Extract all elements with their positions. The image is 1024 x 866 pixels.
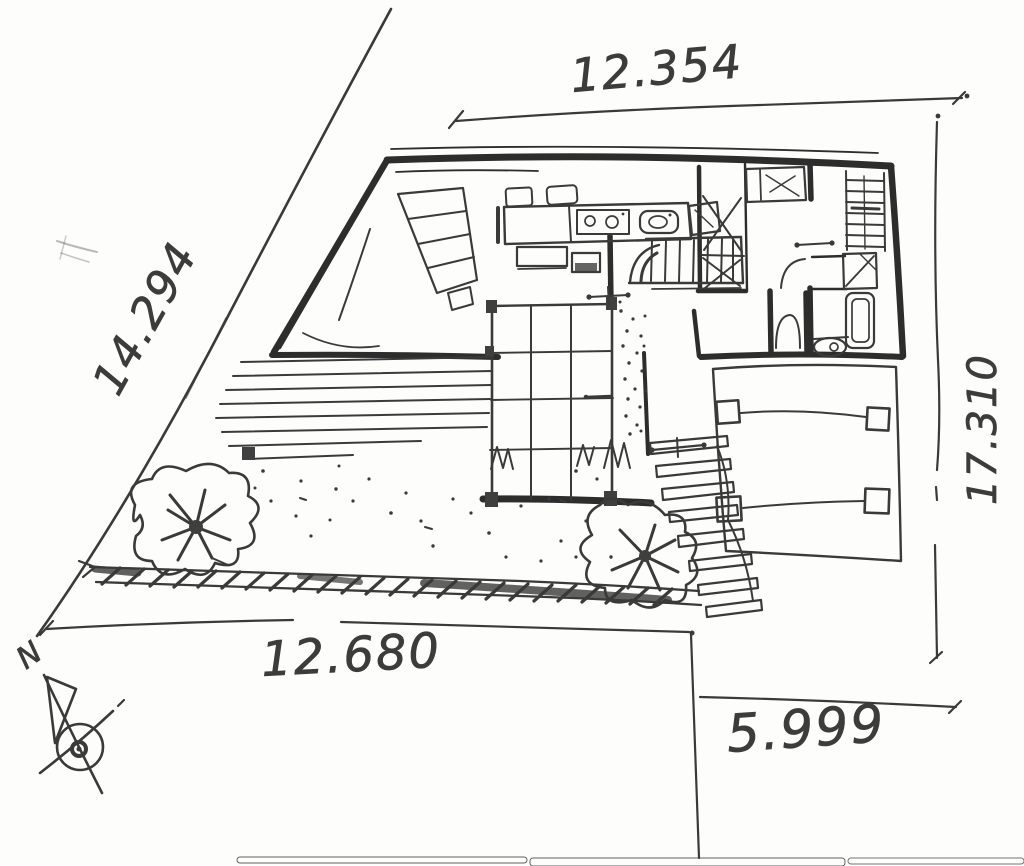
plant-tufts <box>491 440 630 469</box>
dimension-label-right: 17.310 <box>960 353 1006 505</box>
post <box>716 400 739 423</box>
site-plan-sketch: 12.354 17.310 14.294 12.680 5.999 N <box>0 0 1024 866</box>
dimension-top: 12.354 <box>449 34 969 128</box>
door-symbol <box>781 240 835 288</box>
post <box>866 407 889 430</box>
tree <box>131 464 258 575</box>
dimension-label-bottom: 12.680 <box>260 623 443 688</box>
bathtub <box>846 293 874 348</box>
dimension-bottom-right: 5.999 <box>700 694 961 765</box>
ramp-sketch <box>303 188 477 347</box>
glazed-grid-wall <box>485 287 631 507</box>
shelf-closet <box>846 171 885 251</box>
post <box>865 489 890 514</box>
dimension-label-top: 12.354 <box>568 34 745 103</box>
scanned-sketch-page: 12.354 17.310 14.294 12.680 5.999 N <box>0 0 1024 866</box>
chair <box>546 185 577 205</box>
hatched-retaining-wall <box>79 561 701 605</box>
shower <box>843 253 877 289</box>
north-label: N <box>10 634 50 677</box>
dimension-right: 17.310 <box>930 114 1006 663</box>
tree-trunk-scribble <box>162 490 230 565</box>
bathroom-fixtures <box>776 171 885 356</box>
door-leaf <box>776 315 800 348</box>
chair <box>506 187 533 206</box>
terrace-decking <box>216 357 492 460</box>
site-boundary <box>37 9 391 636</box>
pencil-smudge <box>57 236 97 262</box>
cabinet <box>517 247 567 266</box>
house-walls <box>272 147 903 503</box>
staircase <box>629 237 743 289</box>
bed <box>746 167 806 202</box>
kitchen-sink <box>640 211 678 233</box>
tree-trunk-scribble <box>612 525 678 590</box>
scan-artifact <box>237 857 1024 866</box>
dimension-bottom: 12.680 <box>40 620 699 858</box>
carport <box>713 365 901 561</box>
stove-top <box>577 210 629 234</box>
north-compass-icon: N <box>10 634 124 793</box>
dimension-left: 14.294 <box>83 233 208 403</box>
dimension-label-bottom-right: 5.999 <box>725 694 888 765</box>
door-symbol <box>586 287 630 305</box>
dimension-label-left: 14.294 <box>83 233 208 403</box>
